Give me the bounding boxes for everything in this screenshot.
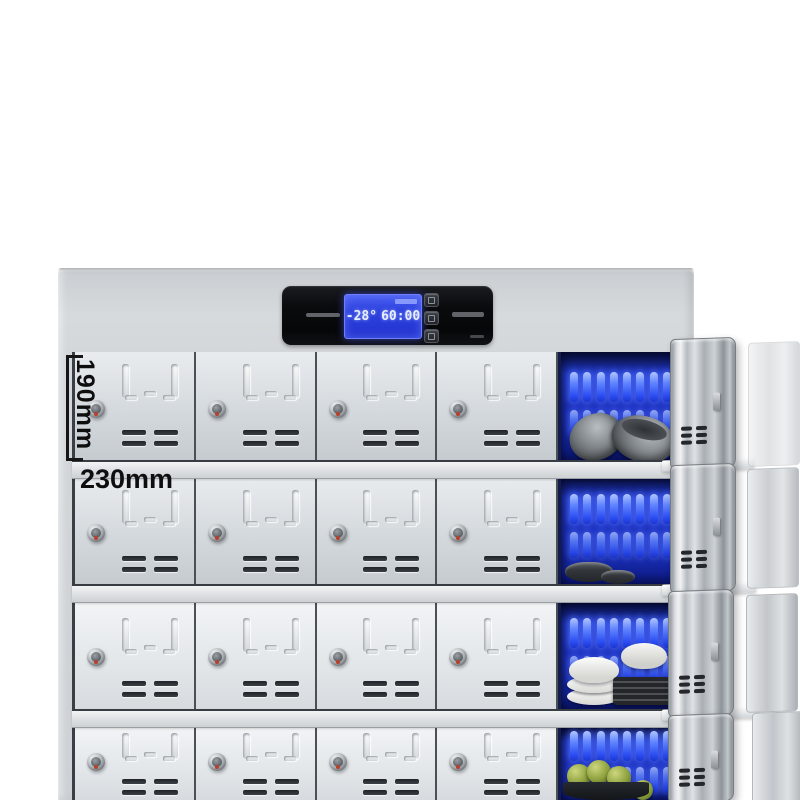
lcd-display: -28° 60:00 [344, 294, 422, 339]
vent-slots-icon [484, 779, 540, 795]
lock-icon [449, 753, 467, 771]
lock-icon [87, 524, 105, 542]
handle-emboss-icon [484, 490, 540, 524]
lock-icon [208, 648, 226, 666]
handle-emboss-icon [363, 490, 419, 524]
lcd-temperature: -28° [346, 309, 377, 324]
lock-icon [449, 400, 467, 418]
handle-emboss-icon [363, 364, 419, 398]
compartment-width-label: 230mm [80, 464, 173, 495]
handle-emboss-icon [243, 364, 299, 398]
handle-emboss-icon [363, 733, 419, 759]
vent-slots-icon [243, 779, 299, 795]
vent-slots-icon [243, 430, 299, 446]
locker-door [437, 476, 558, 584]
compartment-contents [561, 352, 681, 460]
white-bowl [621, 643, 667, 669]
white-bowl [569, 657, 619, 683]
set-button [424, 293, 439, 307]
row-1 [75, 352, 684, 460]
locker-door [196, 727, 317, 800]
locker-door [75, 602, 196, 709]
door-latch-icon [713, 517, 720, 535]
door-vent-slots-icon [681, 550, 707, 569]
uv-compartment-open [558, 727, 684, 800]
open-door-outer-edge [748, 341, 800, 467]
locker-door [196, 476, 317, 584]
open-door [670, 337, 736, 469]
vent-slots-icon [122, 556, 178, 572]
handle-emboss-icon [484, 618, 540, 652]
panel-brand-text [452, 312, 484, 317]
lock-icon [208, 753, 226, 771]
door-latch-icon [713, 392, 720, 410]
row-3 [75, 602, 684, 709]
open-door-outer-edge [746, 593, 798, 713]
lcd-readout: -28° 60:00 [345, 309, 421, 324]
dark-bowl [601, 570, 635, 584]
lock-icon [329, 753, 347, 771]
vent-slots-icon [243, 556, 299, 572]
lock-icon [208, 524, 226, 542]
open-door [668, 589, 734, 717]
locker-door [317, 602, 438, 709]
panel-model-text [306, 313, 340, 317]
handle-emboss-icon [484, 364, 540, 398]
locker-door [75, 727, 196, 800]
vent-slots-icon [363, 430, 419, 446]
door-vent-slots-icon [679, 675, 705, 694]
locker-door [196, 352, 317, 460]
locker-door [437, 727, 558, 800]
product-photo-disinfection-cabinet: -28° 60:00 [0, 0, 800, 800]
uv-compartment-open [558, 476, 684, 584]
compartment-contents [561, 602, 681, 709]
open-door-outer-edge [747, 467, 799, 589]
door-vent-slots-icon [679, 767, 705, 786]
handle-emboss-icon [484, 733, 540, 759]
handle-emboss-icon [243, 733, 299, 759]
handle-emboss-icon [122, 364, 178, 398]
lock-icon [449, 524, 467, 542]
control-panel: -28° 60:00 [282, 286, 493, 345]
vent-slots-icon [363, 779, 419, 795]
handle-emboss-icon [243, 618, 299, 652]
row-4 [75, 727, 684, 800]
lock-icon [329, 400, 347, 418]
handle-emboss-icon [122, 733, 178, 759]
locker-door [317, 476, 438, 584]
vent-slots-icon [484, 556, 540, 572]
vent-slots-icon [122, 430, 178, 446]
dark-fruit-bowl [563, 782, 649, 800]
compartment-height-label: 190mm [70, 359, 99, 450]
compartment-contents [561, 727, 681, 800]
panel-logo-mark [470, 335, 484, 338]
lcd-timer: 60:00 [381, 309, 420, 324]
uv-compartment-open [558, 352, 684, 460]
lock-icon [329, 648, 347, 666]
lcd-mode-badge [395, 299, 417, 304]
vent-slots-icon [484, 430, 540, 446]
handle-emboss-icon [243, 490, 299, 524]
shelf-divider [72, 584, 686, 603]
uv-compartment-open [558, 602, 684, 709]
lock-icon [87, 648, 105, 666]
vent-slots-icon [122, 681, 178, 697]
shelf-divider [72, 709, 686, 728]
handle-emboss-icon [363, 618, 419, 652]
open-door [668, 713, 734, 800]
locker-door [437, 352, 558, 460]
open-door [670, 463, 736, 593]
door-vent-slots-icon [681, 426, 707, 445]
dark-plate-stack [613, 677, 671, 705]
lock-icon [329, 524, 347, 542]
vent-slots-icon [243, 681, 299, 697]
gray-bowl [606, 409, 679, 460]
panel-buttons [424, 293, 439, 343]
open-door-outer-edge [752, 711, 800, 800]
vent-slots-icon [122, 779, 178, 795]
locker-door [317, 727, 438, 800]
vent-slots-icon [363, 681, 419, 697]
vent-slots-icon [484, 681, 540, 697]
lock-icon [449, 648, 467, 666]
handle-emboss-icon [122, 618, 178, 652]
locker-door [317, 352, 438, 460]
up-button [424, 311, 439, 325]
down-button [424, 329, 439, 343]
compartment-contents [561, 476, 681, 584]
handle-emboss-icon [122, 490, 178, 524]
lock-icon [208, 400, 226, 418]
lock-icon [87, 753, 105, 771]
door-latch-icon [711, 751, 718, 769]
vent-slots-icon [363, 556, 419, 572]
locker-door [196, 602, 317, 709]
door-latch-icon [711, 642, 718, 660]
locker-door [437, 602, 558, 709]
